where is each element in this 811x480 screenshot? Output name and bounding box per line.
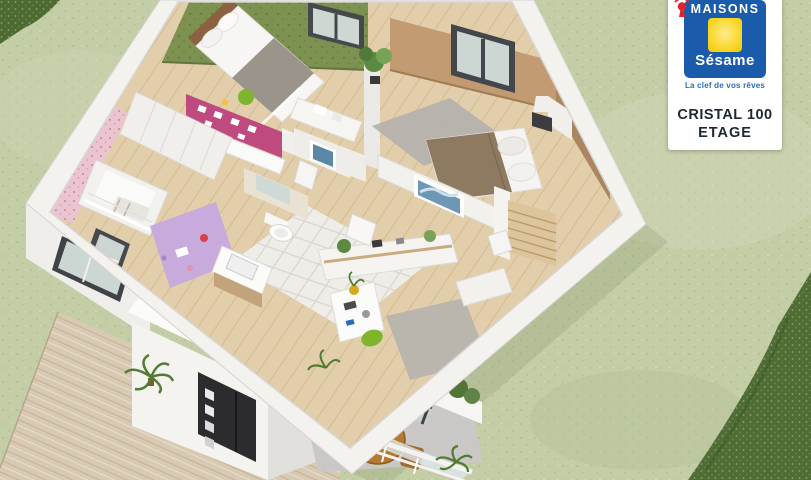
- brand-logo: MAISONS Sésame: [684, 0, 766, 78]
- floorplan-poster: MAISONS Sésame La clef de vos rêves CRIS…: [0, 0, 811, 480]
- desk-vase: [349, 285, 359, 295]
- brand-tagline: La clef de vos rêves: [668, 81, 782, 90]
- brand-top-text: MAISONS: [691, 2, 760, 16]
- floor-level-label: ETAGE: [668, 124, 782, 142]
- brand-card: MAISONS Sésame La clef de vos rêves CRIS…: [668, 0, 782, 150]
- model-name: CRISTAL 100: [668, 107, 782, 124]
- brand-name-text: Sésame: [695, 53, 755, 69]
- desk-chair-green: [238, 89, 254, 105]
- partition-wall: [364, 58, 380, 170]
- toy-red: [200, 234, 208, 242]
- shelf-plant-1: [337, 239, 351, 253]
- keyhole-house-icon: [708, 18, 742, 52]
- shelf-plant-2: [424, 230, 436, 242]
